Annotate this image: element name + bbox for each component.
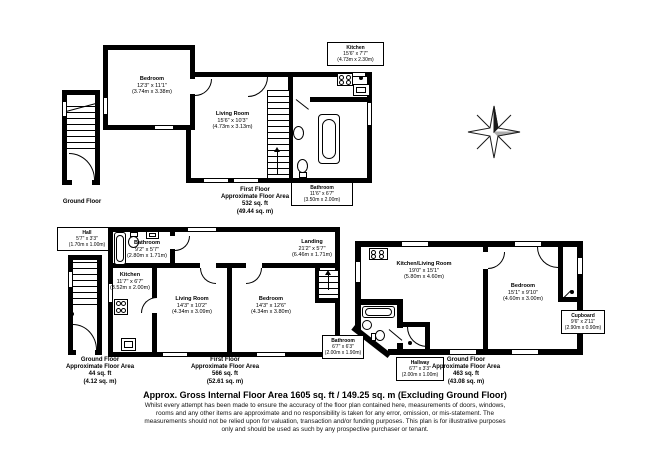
window — [367, 103, 372, 125]
room-dims-metric: (2.00m x 1.90m) — [324, 350, 362, 356]
sink-icon — [362, 320, 372, 330]
disclaimer-line: rooms and any other items are approximat… — [0, 410, 650, 417]
area-line: 44 sq. ft — [45, 371, 155, 378]
window — [188, 227, 216, 232]
toilet-icon — [297, 159, 308, 173]
window — [103, 98, 108, 114]
area-line: 532 sq. ft — [205, 201, 305, 208]
room-dims-metric: (2.90m x 0.90m) — [563, 325, 603, 331]
room-dims-metric: (5.80m x 4.60m) — [378, 274, 470, 281]
wall — [355, 299, 403, 305]
wall — [355, 241, 361, 331]
room-dims-metric: (4.34m x 3.80m) — [232, 309, 310, 316]
stair-arrow — [277, 152, 278, 174]
disclaimer-line: measurements should not be relied upon f… — [0, 418, 650, 425]
window — [577, 258, 583, 274]
wall — [315, 298, 340, 303]
area-line: 463 sq. ft — [410, 371, 522, 378]
wall — [388, 349, 583, 355]
disclaimer-line: only and should be used as such by any p… — [0, 426, 650, 433]
burner — [121, 308, 126, 313]
window — [512, 349, 538, 355]
toilet-icon — [375, 330, 385, 341]
floor-area-label: First Floor Approximate Floor Area 566 s… — [170, 357, 280, 386]
room-label-living: Living Room 15'6" x 10'3" (4.73m x 3.13m… — [190, 111, 275, 131]
area-line: First Floor — [170, 357, 280, 364]
disclaimer-line: Whilst every attempt has been made to en… — [0, 402, 650, 409]
area-line: First Floor — [205, 187, 305, 194]
door-arc-icon — [488, 252, 505, 269]
floor-area-label: Ground Floor Approximate Floor Area 463 … — [410, 357, 522, 386]
window — [450, 349, 476, 355]
room-label-kitchen-living: Kitchen/Living Room 19'0" x 15'1" (5.80m… — [378, 261, 470, 281]
hinge-dot — [359, 76, 363, 80]
window — [402, 241, 428, 247]
wall — [262, 263, 335, 268]
window — [204, 178, 228, 183]
bathtub-basin — [365, 308, 392, 316]
room-label-bedroom: Bedroom 14'3" x 12'6" (4.34m x 3.80m) — [232, 296, 310, 316]
hinge-dot — [70, 312, 74, 316]
wall — [152, 313, 157, 352]
toilet-tank — [299, 172, 307, 178]
room-label-bedroom: Bedroom 15'1" x 9'10" (4.60m x 3.00m) — [486, 283, 560, 303]
floor-tag: Ground Floor — [50, 199, 114, 205]
room-label-kitchen: Kitchen 15'6" x 7'7" (4.73m x 2.30m) — [327, 42, 384, 66]
room-dims-metric: (6.46m x 1.71m) — [282, 252, 342, 259]
burner — [346, 80, 351, 85]
area-line: Approximate Floor Area — [45, 364, 155, 371]
staircase — [267, 90, 289, 178]
floor-area-label: Ground Floor Approximate Floor Area 44 s… — [45, 357, 155, 386]
room-dims-metric: (4.73m x 2.30m) — [329, 57, 382, 63]
room-label-landing: Landing 21'2" x 5'7" (6.46m x 1.71m) — [282, 239, 342, 259]
area-line: (43.08 sq. m) — [410, 379, 522, 386]
area-line: 566 sq. ft — [170, 371, 280, 378]
burner — [371, 254, 376, 259]
sink-basin — [149, 233, 156, 237]
window — [155, 125, 173, 130]
sink-basin — [356, 87, 366, 93]
area-line: (49.44 sq. m) — [205, 209, 305, 216]
window — [68, 272, 73, 287]
sink-basin — [124, 341, 133, 348]
room-dims-metric: (4.60m x 3.00m) — [486, 296, 560, 303]
stair-arrow-head — [325, 270, 331, 275]
area-line: Approximate Floor Area — [410, 364, 522, 371]
room-label-cupboard: Cupboard 9'6" x 2'11" (2.90m x 0.90m) — [561, 310, 605, 334]
door-arc-icon — [537, 247, 558, 268]
floorplan-canvas: Ground Floor — [0, 0, 650, 459]
room-dims-metric: (1.70m x 1.00m) — [59, 242, 115, 248]
floor-area-label: First Floor Approximate Floor Area 532 s… — [205, 187, 305, 216]
wall — [175, 263, 200, 268]
burner — [121, 301, 126, 306]
hinge-dot — [570, 290, 574, 294]
room-label-bedroom: Bedroom 12'3" x 11'1" (3.74m x 3.38m) — [110, 76, 194, 96]
staircase — [67, 106, 95, 152]
room-label-living: Living Room 14'3" x 10'2" (4.34m x 3.09m… — [156, 296, 228, 316]
room-label-bathroom: Bathroom 6'7" x 6'3" (2.00m x 1.90m) — [322, 335, 364, 359]
compass-rose-icon — [466, 104, 522, 160]
room-label-kitchen: Kitchen 11'7" x 6'7" (3.52m x 2.00m) — [99, 272, 161, 292]
stair-arrow — [328, 274, 329, 290]
area-line: Ground Floor — [45, 357, 155, 364]
room-dims-metric: (2.80m x 1.71m) — [116, 253, 178, 260]
room-dims-metric: (3.74m x 3.38m) — [110, 89, 194, 96]
window — [234, 178, 258, 183]
door-opening — [76, 350, 95, 355]
gross-area-heading: Approx. Gross Internal Floor Area 1605 s… — [0, 390, 650, 400]
area-line: Ground Floor — [410, 357, 522, 364]
area-line: (4.12 sq. m) — [45, 379, 155, 386]
room-dims-metric: (4.34m x 3.09m) — [156, 309, 228, 316]
burner — [339, 80, 344, 85]
area-line: (52.61 sq. m) — [170, 379, 280, 386]
area-line: Approximate Floor Area — [205, 194, 305, 201]
room-dims-metric: (4.73m x 3.13m) — [190, 124, 275, 131]
door-opening — [72, 180, 92, 185]
hinge-dot — [408, 341, 412, 345]
staircase — [73, 262, 97, 310]
window — [62, 102, 67, 116]
area-line: Approximate Floor Area — [170, 364, 280, 371]
stair-arrow-head — [274, 147, 280, 152]
window — [355, 262, 361, 282]
wall — [310, 97, 372, 102]
bathtub-basin — [322, 119, 336, 159]
burner — [379, 254, 384, 259]
sink-icon — [293, 126, 304, 140]
room-label-bathroom: Bathroom 9'2" x 5'7" (2.80m x 1.71m) — [116, 240, 178, 260]
room-dims-metric: (3.52m x 2.00m) — [99, 285, 161, 292]
